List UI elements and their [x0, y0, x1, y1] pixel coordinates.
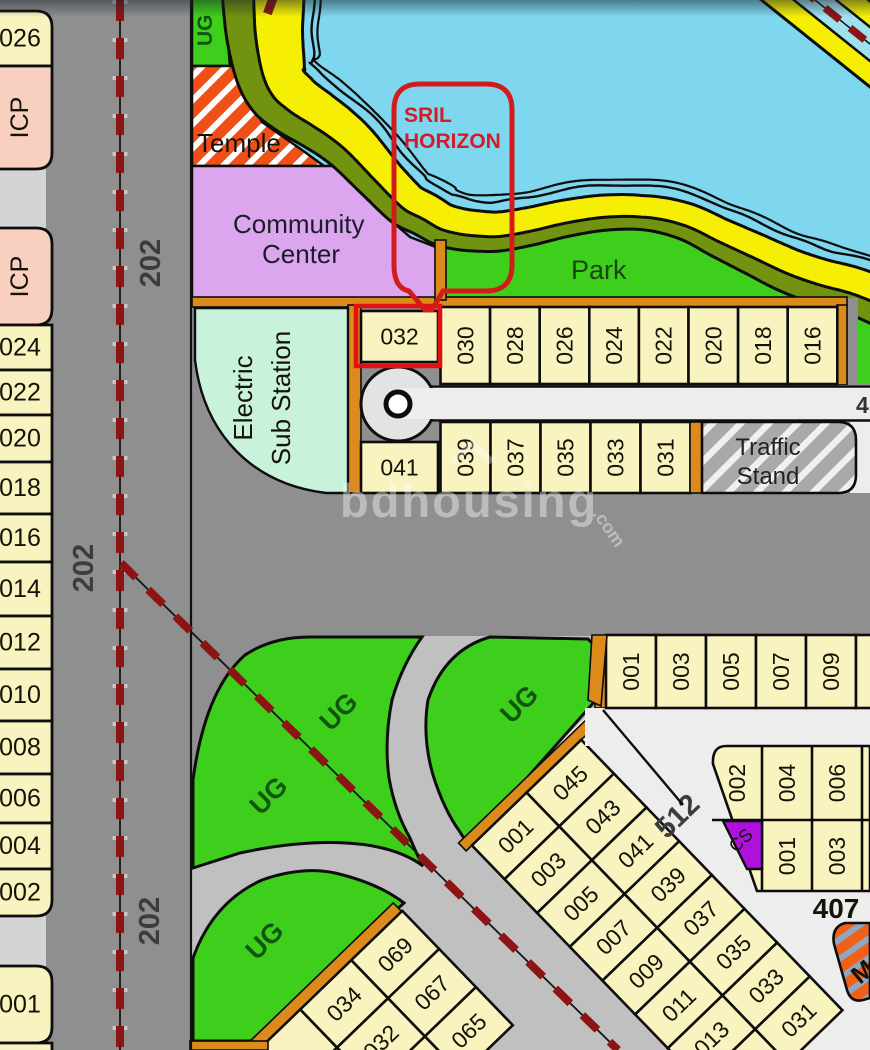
- svg-text:003: 003: [668, 652, 694, 690]
- svg-text:ICP: ICP: [6, 97, 34, 139]
- svg-text:Traffic: Traffic: [735, 434, 800, 461]
- svg-text:016: 016: [0, 524, 41, 552]
- svg-text:006: 006: [824, 764, 850, 802]
- svg-text:024: 024: [601, 326, 627, 365]
- svg-text:030: 030: [452, 326, 478, 364]
- svg-text:202: 202: [135, 239, 167, 287]
- svg-text:020: 020: [700, 326, 726, 364]
- svg-text:008: 008: [0, 734, 41, 762]
- svg-text:Community: Community: [233, 209, 364, 239]
- svg-text:014: 014: [0, 575, 41, 603]
- svg-text:020: 020: [0, 425, 41, 453]
- svg-text:016: 016: [800, 326, 826, 364]
- svg-text:012: 012: [0, 629, 41, 657]
- svg-text:010: 010: [0, 681, 41, 709]
- svg-text:026: 026: [552, 326, 578, 364]
- svg-text:005: 005: [718, 652, 744, 690]
- svg-text:033: 033: [603, 438, 629, 476]
- svg-text:022: 022: [0, 379, 41, 407]
- svg-text:001: 001: [618, 652, 644, 690]
- svg-text:024: 024: [0, 334, 41, 362]
- svg-text:ICP: ICP: [6, 256, 34, 298]
- svg-text:037: 037: [503, 438, 529, 476]
- svg-text:HORIZON: HORIZON: [404, 130, 501, 153]
- svg-text:001: 001: [774, 837, 800, 875]
- svg-text:026: 026: [0, 25, 41, 53]
- svg-text:002: 002: [724, 764, 750, 802]
- svg-text:035: 035: [553, 438, 579, 476]
- svg-text:001: 001: [0, 991, 41, 1019]
- svg-text:002: 002: [0, 879, 41, 907]
- svg-text:202: 202: [134, 897, 166, 945]
- svg-text:UG: UG: [194, 15, 217, 47]
- svg-text:Sub Station: Sub Station: [266, 331, 296, 465]
- svg-text:028: 028: [502, 326, 528, 364]
- svg-text:009: 009: [818, 652, 844, 690]
- svg-text:004: 004: [774, 764, 800, 803]
- svg-text:bdhousing: bdhousing: [340, 474, 598, 527]
- svg-text:Electric: Electric: [228, 355, 258, 440]
- svg-text:018: 018: [750, 326, 776, 364]
- svg-text:202: 202: [68, 544, 100, 592]
- svg-text:Stand: Stand: [737, 463, 800, 490]
- svg-text:4: 4: [856, 392, 869, 418]
- svg-text:007: 007: [768, 652, 794, 690]
- svg-text:018: 018: [0, 474, 41, 502]
- svg-text:006: 006: [0, 785, 41, 813]
- svg-text:407: 407: [813, 893, 860, 924]
- svg-text:Park: Park: [571, 255, 627, 285]
- svg-text:022: 022: [651, 326, 677, 364]
- svg-text:031: 031: [653, 438, 679, 476]
- svg-text:003: 003: [824, 837, 850, 875]
- svg-text:004: 004: [0, 832, 41, 860]
- svg-text:Center: Center: [262, 239, 340, 269]
- svg-text:SRIL: SRIL: [404, 104, 452, 127]
- svg-text:Temple: Temple: [197, 128, 281, 158]
- svg-text:032: 032: [380, 324, 418, 350]
